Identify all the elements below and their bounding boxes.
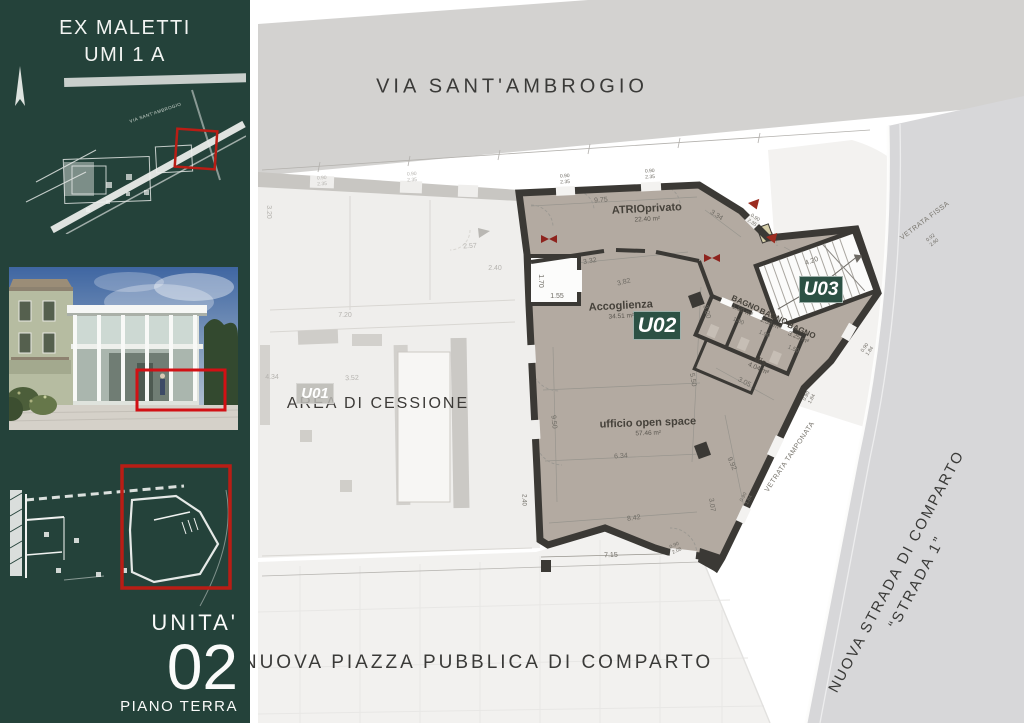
- site-map-thumbnail: VIA SANT'AMBROGIO: [6, 62, 246, 234]
- floorplan-thumbnail: [4, 460, 244, 610]
- presentation-sheet: VIA SANT'AMBROGIO NUOVA PIAZZA PUBBLICA …: [0, 0, 1024, 723]
- faded-plan-u01: [258, 172, 540, 558]
- building-photo-thumbnail: [9, 267, 238, 430]
- person: [160, 379, 165, 395]
- highlight-box: [122, 466, 230, 588]
- trees: [204, 319, 238, 407]
- north-arrow-icon: [15, 66, 25, 106]
- pillar: [541, 560, 551, 572]
- map-street-label: VIA SANT'AMBROGIO: [129, 101, 182, 123]
- project-title-line1: EX MALETTI: [0, 15, 250, 42]
- unit-number: 02: [120, 638, 238, 697]
- unit-floor: PIANO TERRA: [120, 698, 238, 715]
- small-room: [529, 256, 579, 304]
- sidebar: EX MALETTI UMI 1 A VIA SANT'AMBROGIO: [0, 0, 250, 723]
- project-title: EX MALETTI UMI 1 A: [0, 15, 250, 69]
- unit-identifier: UNITA' 02 PIANO TERRA: [120, 610, 238, 715]
- piazza: [258, 532, 770, 723]
